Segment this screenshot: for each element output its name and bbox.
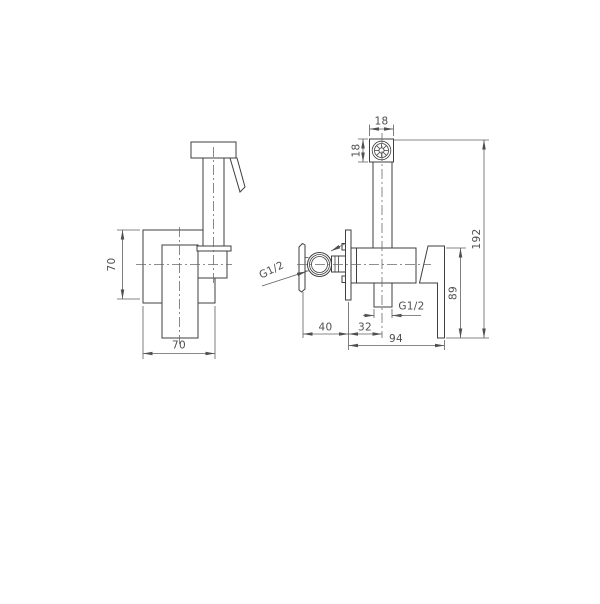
side-valve-plate bbox=[299, 244, 305, 293]
side-riser-fill bbox=[373, 162, 392, 248]
dim-label-nozzle-width: 18 bbox=[375, 116, 389, 128]
technical-drawing-page: 70 70 bbox=[0, 0, 600, 600]
front-trigger-lever bbox=[230, 158, 245, 192]
dim-label-overall-height: 192 bbox=[471, 229, 483, 250]
dim-label-valve-offset: 40 bbox=[319, 322, 333, 334]
outlet-extension-lines bbox=[374, 309, 392, 318]
dim-label-plate-height: 70 bbox=[106, 258, 118, 272]
dim-label-outlet-offset: 32 bbox=[358, 322, 372, 334]
dim-label-plate-width: 70 bbox=[172, 340, 186, 352]
front-mixer-handle bbox=[162, 245, 198, 338]
dim-label-overall-depth: 94 bbox=[389, 333, 403, 345]
side-mixer-body bbox=[351, 248, 416, 283]
front-holder-flange bbox=[197, 246, 231, 251]
side-wall-plate-tab-bottom bbox=[342, 276, 346, 283]
side-view: G1/2 G1/2 18 18 40 32 94 89 192 bbox=[257, 116, 489, 351]
technical-drawing: 70 70 bbox=[0, 0, 600, 600]
side-nozzle-square bbox=[370, 139, 394, 162]
side-outlet-spigot bbox=[374, 283, 392, 307]
side-wall-plate bbox=[346, 230, 352, 300]
dim-label-outlet-thread: G1/2 bbox=[398, 301, 424, 313]
front-view: 70 70 bbox=[106, 142, 245, 359]
dim-label-nozzle-height: 18 bbox=[351, 144, 363, 158]
side-lever-handle bbox=[420, 246, 445, 338]
dim-label-inlet-thread: G1/2 bbox=[257, 259, 286, 281]
dim-label-handle-drop: 89 bbox=[448, 286, 460, 300]
